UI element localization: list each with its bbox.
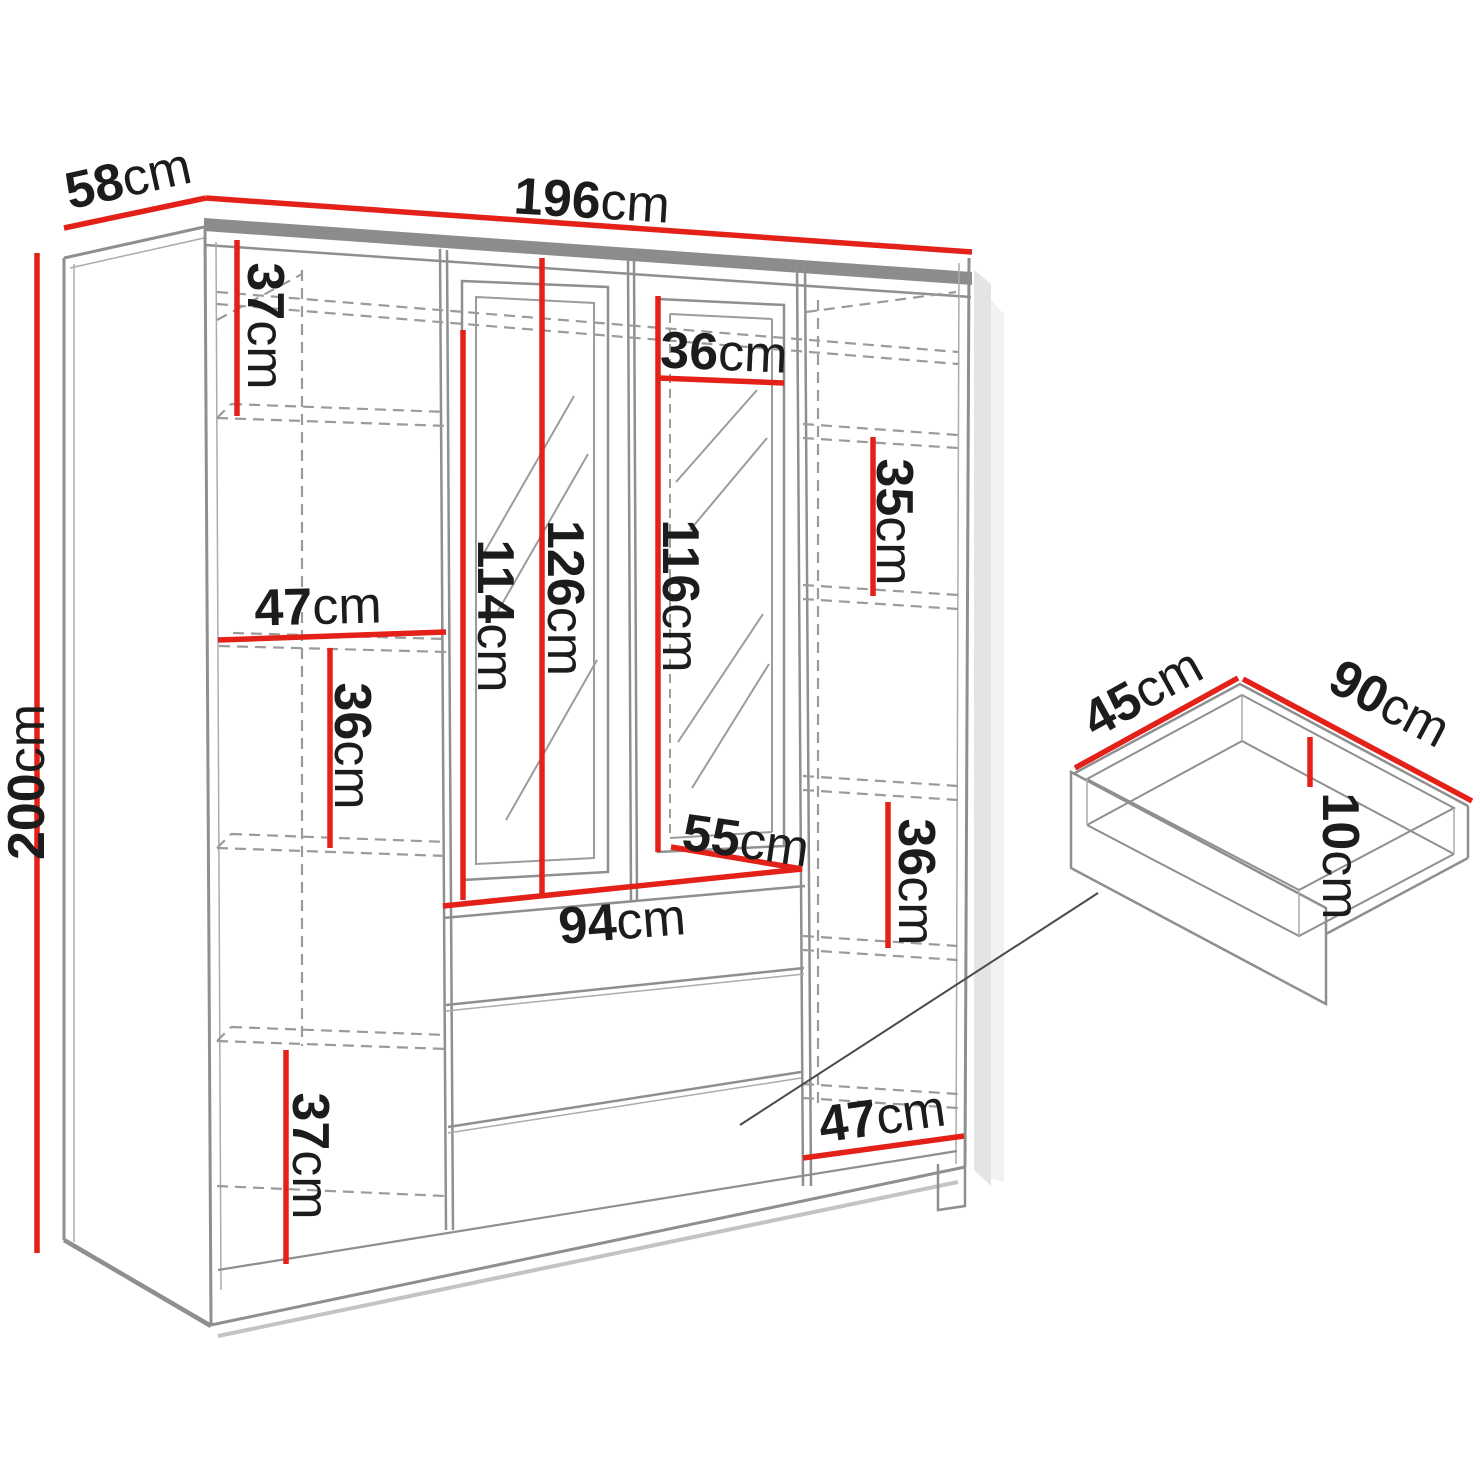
shadow-right: [974, 270, 991, 1186]
right-depth-diagonal: [806, 292, 956, 312]
divider-right-b: [805, 263, 811, 1186]
drawer-divider-1b: [446, 974, 804, 1011]
hanging-rail-line-2: [217, 304, 958, 364]
dimension-labels: 196cm 58cm 200cm 37cm 47cm 36cm 37cm 114…: [0, 137, 1459, 1220]
label-depth: 58cm: [60, 137, 197, 221]
left-shelf-1: [217, 404, 447, 426]
right-shelf-1: [803, 424, 958, 448]
divider-left-b: [447, 250, 453, 1230]
divider-mid-a: [628, 260, 631, 900]
label-center-height: 126cm: [536, 520, 594, 676]
drawer-front-panel: [1071, 772, 1326, 1004]
label-door-width: 36cm: [659, 321, 789, 384]
label-left-top-height: 37cm: [236, 262, 294, 389]
front-right-edge: [965, 258, 969, 1166]
wardrobe-carcass: [64, 218, 1004, 1336]
label-height: 200cm: [0, 704, 56, 860]
divider-right-a: [797, 262, 803, 1186]
label-right-mirror-height: 116cm: [651, 519, 709, 672]
label-interior-depth: 55cm: [679, 803, 813, 878]
label-right-lower-height: 36cm: [887, 818, 945, 945]
front-left-edge-inner: [216, 242, 221, 1290]
label-drawer-width: 90cm: [1320, 648, 1460, 759]
label-right-upper-height: 35cm: [865, 458, 923, 585]
label-drawer-height: 10cm: [1311, 792, 1369, 919]
label-left-bottom-height: 37cm: [281, 1092, 339, 1219]
label-drawer-section-width: 94cm: [556, 888, 687, 956]
right-shelf-2: [803, 585, 958, 609]
wardrobe-diagram-svg: 196cm 58cm 200cm 37cm 47cm 36cm 37cm 114…: [0, 0, 1480, 1480]
label-left-mid-height: 36cm: [323, 682, 381, 809]
drawer-divider-1: [446, 968, 804, 1005]
front-left-edge: [205, 229, 211, 1325]
diagram-canvas: 196cm 58cm 200cm 37cm 47cm 36cm 37cm 114…: [0, 0, 1480, 1480]
drawer-divider-2b: [448, 1078, 801, 1133]
label-left-width: 47cm: [254, 576, 383, 637]
shadow-right-soft: [991, 300, 1004, 1182]
vertical-dividers: [440, 249, 811, 1230]
left-shelf-4: [217, 1027, 447, 1049]
label-left-mirror-height: 114cm: [466, 539, 524, 692]
front-right-edge-inner: [956, 263, 959, 1164]
hanging-rail-line-1: [217, 292, 958, 352]
side-bottom-edge: [64, 1240, 211, 1326]
label-width: 196cm: [512, 167, 671, 234]
divider-mid-b: [634, 260, 637, 900]
divider-left-a: [440, 249, 446, 1230]
right-shelf-3: [803, 776, 958, 800]
